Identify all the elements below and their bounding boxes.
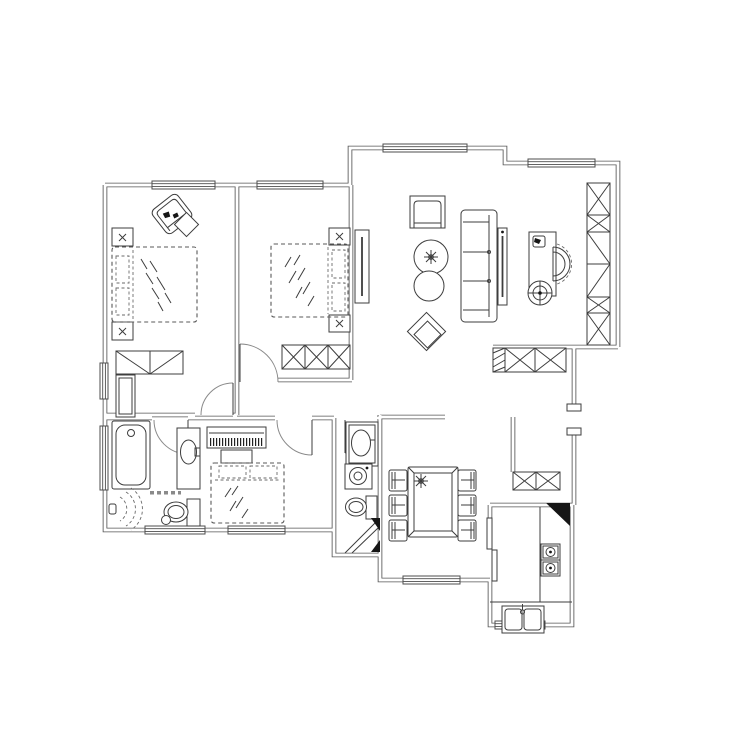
piano: [207, 427, 266, 448]
bathroom-main: [109, 421, 200, 530]
window-bedroom3-bottom: [228, 526, 285, 534]
entry-door-jamb-bottom: [567, 428, 581, 435]
nightstand: [329, 315, 350, 332]
foyer: [493, 348, 566, 490]
dining-room: [389, 467, 476, 541]
living-room: [355, 183, 610, 351]
toilet: [346, 496, 378, 519]
double-sink: [502, 604, 544, 633]
piano-bench: [221, 450, 252, 463]
armchair: [410, 196, 445, 228]
round-side-table: [414, 271, 444, 301]
fan: [528, 281, 552, 305]
table-plant: [414, 474, 428, 488]
vanity-sink: [177, 428, 200, 489]
dining-chair: [389, 470, 407, 491]
diamond-lounge-chair: [407, 312, 445, 350]
window-dining-bottom: [403, 576, 460, 584]
nightstand: [329, 228, 350, 245]
vanity-sink: [346, 422, 378, 466]
dining-chair: [458, 520, 476, 541]
shower-head: [109, 488, 142, 530]
dining-chair: [389, 520, 407, 541]
bedroom-third: [207, 427, 284, 523]
dining-chair: [389, 495, 407, 516]
door-bedroom3: [277, 420, 312, 455]
wardrobe: [282, 345, 350, 369]
double-bed: [271, 244, 348, 317]
double-bed: [112, 247, 197, 322]
door-bedroom2: [240, 344, 278, 382]
nightstand: [112, 322, 133, 340]
toilet: [162, 499, 201, 526]
three-seat-sofa: [461, 210, 497, 322]
screen-panel: [498, 228, 507, 305]
window-study-top: [528, 159, 595, 167]
window-bathroom1-bottom: [145, 526, 205, 534]
bathroom-second: [345, 422, 380, 553]
dining-chair: [458, 495, 476, 516]
window-bathroom1-left: [100, 426, 108, 490]
dresser: [116, 351, 183, 374]
floor-plan-canvas: [0, 0, 740, 740]
bedroom-second: [271, 228, 350, 369]
dining-table: [408, 467, 458, 537]
round-plant-table: [414, 240, 448, 274]
nightstand: [112, 228, 133, 246]
tv-panel: [355, 230, 369, 303]
window-bedroom2-top: [257, 181, 323, 189]
door-bedroom1: [201, 383, 233, 415]
tall-cabinet: [116, 375, 135, 417]
two-burner-stove: [541, 544, 560, 576]
bookshelf-column: [587, 183, 610, 345]
bedroom-master: [112, 192, 199, 417]
bathtub: [112, 421, 150, 489]
window-living-top: [383, 144, 467, 152]
kitchen: [490, 503, 572, 633]
door-kitchen-sliding: [487, 518, 497, 581]
low-cabinet: [513, 472, 560, 490]
tiny-annotation: [150, 491, 181, 495]
window-bedroom1-left: [100, 363, 108, 399]
shoe-cabinet: [493, 348, 566, 372]
double-bed: [211, 463, 284, 523]
dining-chair: [458, 470, 476, 491]
shower-corner: [345, 518, 380, 553]
floor-plan-drawing: [0, 0, 740, 740]
washing-machine: [345, 464, 372, 489]
window-bedroom1-top: [152, 181, 215, 189]
entry-door-jamb-top: [567, 404, 581, 411]
